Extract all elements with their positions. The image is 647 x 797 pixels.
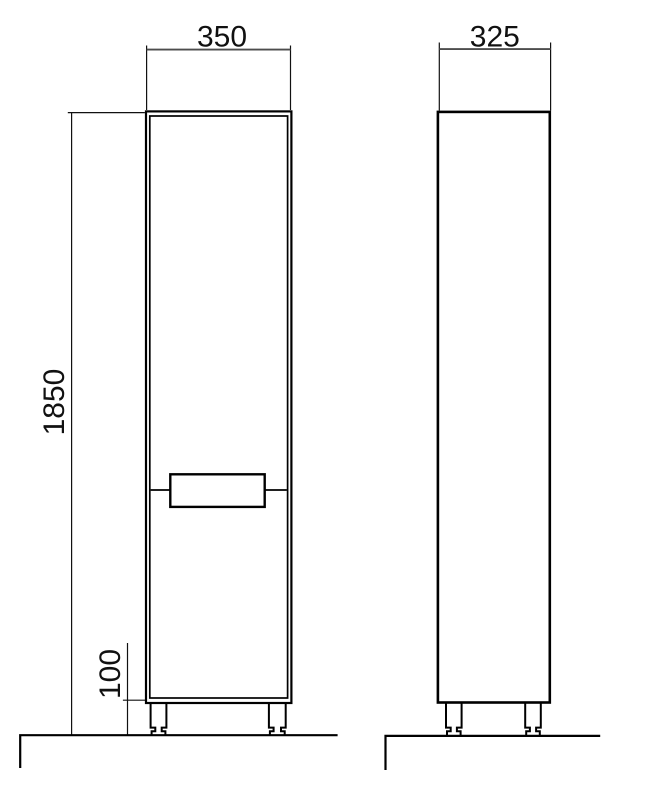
svg-text:100: 100: [94, 649, 127, 699]
svg-text:325: 325: [470, 20, 520, 53]
svg-text:1850: 1850: [38, 369, 71, 436]
svg-text:350: 350: [197, 21, 247, 54]
